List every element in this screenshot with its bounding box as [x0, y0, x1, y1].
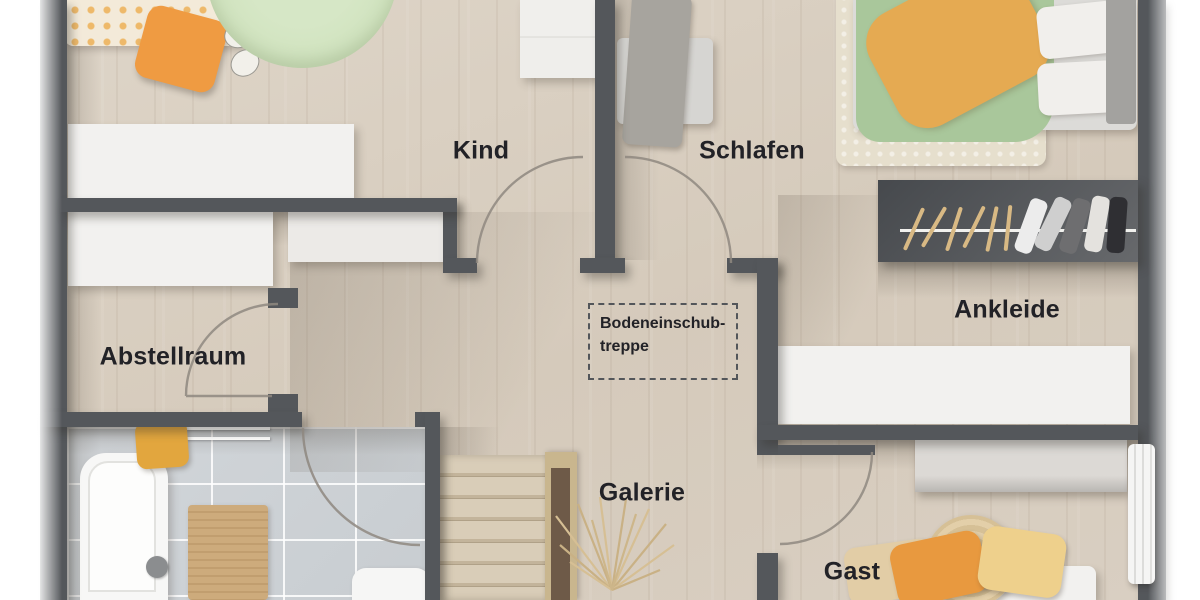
attic-stairs-box: Bodeneinschub- treppe — [588, 303, 738, 380]
wall-bath-stairs — [425, 412, 440, 600]
ankleide-sideboard — [778, 346, 1130, 424]
towel-rail — [186, 437, 270, 440]
wall-foot-center — [580, 258, 625, 273]
room-label-schlafen: Schlafen — [699, 137, 805, 166]
schlafen-blanket — [622, 0, 692, 148]
bathtub-basin — [88, 461, 156, 592]
wall-galerie-gast-top — [757, 440, 778, 455]
storage-cabinet — [68, 212, 273, 286]
floor-plan: Bodeneinschub- treppe Kind Schlafen Abst… — [0, 0, 1200, 600]
towel-rail — [186, 427, 270, 430]
room-label-gast: Gast — [824, 558, 880, 587]
schlafen-headboard — [1106, 0, 1136, 124]
wall-kind-jamb-foot — [443, 258, 477, 273]
wall-abst-stub-top — [268, 288, 298, 308]
wall-kind-schlafen — [595, 0, 615, 260]
room-label-ankleide: Ankleide — [954, 296, 1060, 325]
bath-sink — [352, 568, 430, 600]
room-label-galerie: Galerie — [599, 479, 685, 508]
attic-stairs-label-line1: Bodeneinschub- — [600, 312, 736, 335]
wall-bath-top-left — [40, 412, 302, 427]
kind-sideboard — [68, 124, 354, 198]
room-label-kind: Kind — [453, 137, 509, 166]
wall-ankleide-gast — [757, 425, 1138, 440]
bathtub — [80, 453, 168, 600]
attic-stairs-label-line2: treppe — [600, 335, 736, 358]
wall-abstellraum-top — [60, 198, 457, 212]
wall-galerie-gast-bottom — [757, 553, 778, 600]
stairwell-opening — [551, 468, 570, 600]
wooden-bath-mat — [188, 505, 268, 600]
outer-wall-left — [40, 0, 67, 600]
wall-hall-ankleide — [757, 258, 778, 440]
bath-faucet — [146, 556, 168, 578]
staircase — [438, 455, 545, 600]
radiator — [1128, 444, 1155, 584]
kind-wall-cabinet — [520, 0, 598, 78]
storage-cabinet — [288, 210, 443, 262]
gast-door-leaf — [778, 445, 875, 455]
gast-wardrobe — [915, 437, 1127, 492]
gast-pillow-yellow — [976, 524, 1068, 599]
room-label-abstellraum: Abstellraum — [100, 343, 247, 372]
